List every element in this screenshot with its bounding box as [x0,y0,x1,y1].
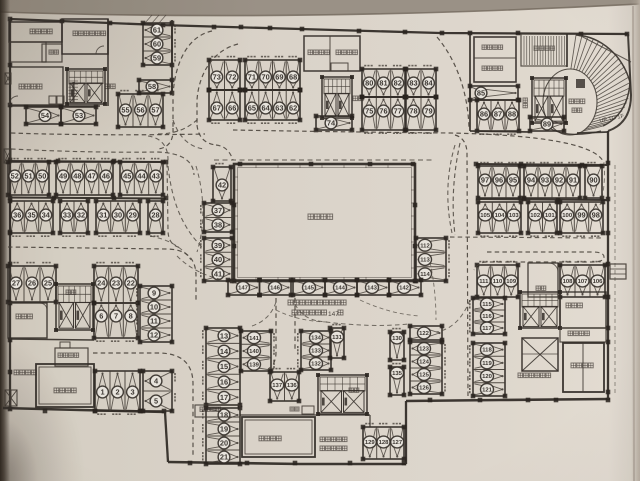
svg-text:130: 130 [392,335,403,342]
svg-text:100: 100 [562,212,573,219]
svg-text:108: 108 [563,278,574,285]
svg-text:70: 70 [261,73,269,82]
svg-text:80: 80 [365,79,373,88]
svg-text:28: 28 [151,211,159,220]
svg-text:45: 45 [123,172,131,181]
svg-text:11: 11 [150,317,158,326]
svg-text:87: 87 [494,110,502,119]
svg-text:116: 116 [482,313,492,320]
svg-text:39: 39 [214,241,222,250]
svg-text:127: 127 [392,439,403,446]
svg-text:141: 141 [249,335,260,342]
svg-text:133: 133 [311,348,322,355]
svg-text:5: 5 [154,397,158,406]
svg-text:2: 2 [115,388,119,397]
svg-text:46: 46 [102,172,110,181]
svg-text:21: 21 [220,453,228,462]
svg-text:29: 29 [129,211,137,220]
svg-text:90: 90 [589,176,597,185]
svg-text:13: 13 [220,331,228,340]
svg-text:77: 77 [394,107,402,116]
svg-text:112: 112 [420,242,430,249]
svg-text:99: 99 [577,211,585,220]
svg-text:136: 136 [287,382,298,389]
svg-text:139: 139 [249,362,260,369]
svg-text:86: 86 [480,110,488,119]
svg-text:66: 66 [228,104,236,113]
svg-text:76: 76 [379,107,387,116]
svg-text:83: 83 [409,79,417,88]
svg-text:9: 9 [152,289,156,298]
svg-text:142: 142 [399,285,410,292]
svg-text:19: 19 [220,425,228,434]
svg-text:93: 93 [541,176,549,185]
svg-text:134: 134 [311,335,322,342]
svg-text:125: 125 [419,372,430,379]
svg-text:7: 7 [114,312,118,321]
svg-text:12: 12 [150,331,158,340]
svg-text:61: 61 [153,26,161,35]
svg-text:22: 22 [127,279,135,288]
svg-text:48: 48 [73,172,81,181]
svg-text:135: 135 [392,370,403,377]
svg-text:15: 15 [220,362,228,371]
svg-text:44: 44 [137,172,146,181]
svg-text:33: 33 [63,211,71,220]
svg-text:143: 143 [367,285,378,292]
svg-text:88: 88 [508,110,516,119]
svg-text:64: 64 [261,104,270,113]
svg-text:117: 117 [482,325,492,332]
svg-text:75: 75 [365,107,373,116]
svg-text:146: 146 [270,285,281,292]
svg-text:23: 23 [112,279,120,288]
svg-text:145: 145 [304,285,315,292]
svg-text:106: 106 [593,278,604,285]
svg-text:6: 6 [99,312,103,321]
svg-text:50: 50 [38,172,46,181]
svg-text:137: 137 [272,382,283,389]
svg-text:110: 110 [493,278,503,285]
svg-text:115: 115 [482,301,492,308]
svg-text:14: 14 [220,347,229,356]
svg-text:68: 68 [289,73,297,82]
svg-text:121: 121 [482,387,493,394]
svg-text:25: 25 [44,279,52,288]
svg-text:103: 103 [509,212,520,219]
svg-text:1: 1 [100,388,104,397]
svg-text:41: 41 [214,270,222,279]
svg-text:36: 36 [13,211,21,220]
svg-text:98: 98 [592,211,600,220]
svg-text:104: 104 [495,212,506,219]
svg-text:144: 144 [335,285,346,292]
svg-text:67: 67 [213,104,221,113]
svg-text:52: 52 [11,172,19,181]
svg-text:95: 95 [509,176,517,185]
svg-text:132: 132 [311,361,322,368]
svg-text:120: 120 [482,373,493,380]
svg-text:85: 85 [477,89,485,98]
svg-text:69: 69 [275,73,283,82]
svg-text:107: 107 [578,278,589,285]
svg-text:47: 47 [87,172,95,181]
svg-text:91: 91 [569,176,577,185]
svg-text:118: 118 [482,347,492,354]
svg-text:16: 16 [220,378,228,387]
svg-text:131: 131 [332,334,343,341]
svg-text:96: 96 [495,176,503,185]
svg-text:126: 126 [419,385,430,392]
svg-text:26: 26 [28,279,36,288]
svg-text:123: 123 [419,346,430,353]
svg-text:73: 73 [213,73,221,82]
svg-text:34: 34 [42,211,51,220]
svg-text:37: 37 [214,206,222,215]
svg-text:27: 27 [12,279,20,288]
svg-text:51: 51 [24,172,32,181]
svg-text:3: 3 [130,388,134,397]
svg-text:20: 20 [220,439,228,448]
svg-text:62: 62 [289,104,297,113]
svg-text:94: 94 [527,176,536,185]
svg-text:59: 59 [153,54,161,63]
svg-text:129: 129 [365,439,376,446]
svg-text:71: 71 [248,73,256,82]
svg-text:105: 105 [480,212,491,219]
svg-text:58: 58 [148,82,156,91]
svg-text:78: 78 [409,107,417,116]
svg-text:8: 8 [129,312,133,321]
svg-text:128: 128 [379,439,390,446]
svg-text:122: 122 [419,330,430,337]
svg-text:53: 53 [75,111,83,120]
svg-text:57: 57 [151,106,159,115]
svg-text:65: 65 [248,104,256,113]
svg-text:55: 55 [121,106,129,115]
svg-text:102: 102 [530,212,541,219]
svg-text:114: 114 [420,271,430,278]
svg-text:89: 89 [543,120,551,129]
svg-text:60: 60 [153,40,161,49]
svg-text:38: 38 [214,220,222,229]
svg-text:147: 147 [238,285,249,292]
svg-text:10: 10 [150,303,158,312]
svg-text:124: 124 [419,359,430,366]
svg-text:42: 42 [218,181,226,190]
svg-text:35: 35 [27,211,35,220]
svg-text:24: 24 [97,279,106,288]
svg-text:74: 74 [327,119,336,128]
svg-text:79: 79 [424,107,432,116]
svg-text:92: 92 [555,176,563,185]
svg-text:63: 63 [275,104,283,113]
svg-text:40: 40 [214,255,222,264]
svg-text:84: 84 [424,79,433,88]
svg-text:56: 56 [136,106,144,115]
svg-text:31: 31 [99,211,107,220]
svg-text:43: 43 [152,172,160,181]
svg-text:113: 113 [420,257,430,264]
svg-text:111: 111 [479,278,489,285]
svg-text:119: 119 [482,360,492,367]
svg-text:101: 101 [545,212,556,219]
svg-text:72: 72 [228,73,236,82]
svg-text:30: 30 [114,211,122,220]
svg-text:54: 54 [41,111,50,120]
svg-text:97: 97 [481,176,489,185]
svg-text:18: 18 [220,411,228,420]
svg-text:140: 140 [249,348,260,355]
svg-text:49: 49 [59,172,67,181]
svg-text:109: 109 [506,278,517,285]
svg-text:82: 82 [394,79,402,88]
svg-text:17: 17 [220,393,228,402]
svg-text:32: 32 [77,211,85,220]
svg-text:81: 81 [379,79,387,88]
